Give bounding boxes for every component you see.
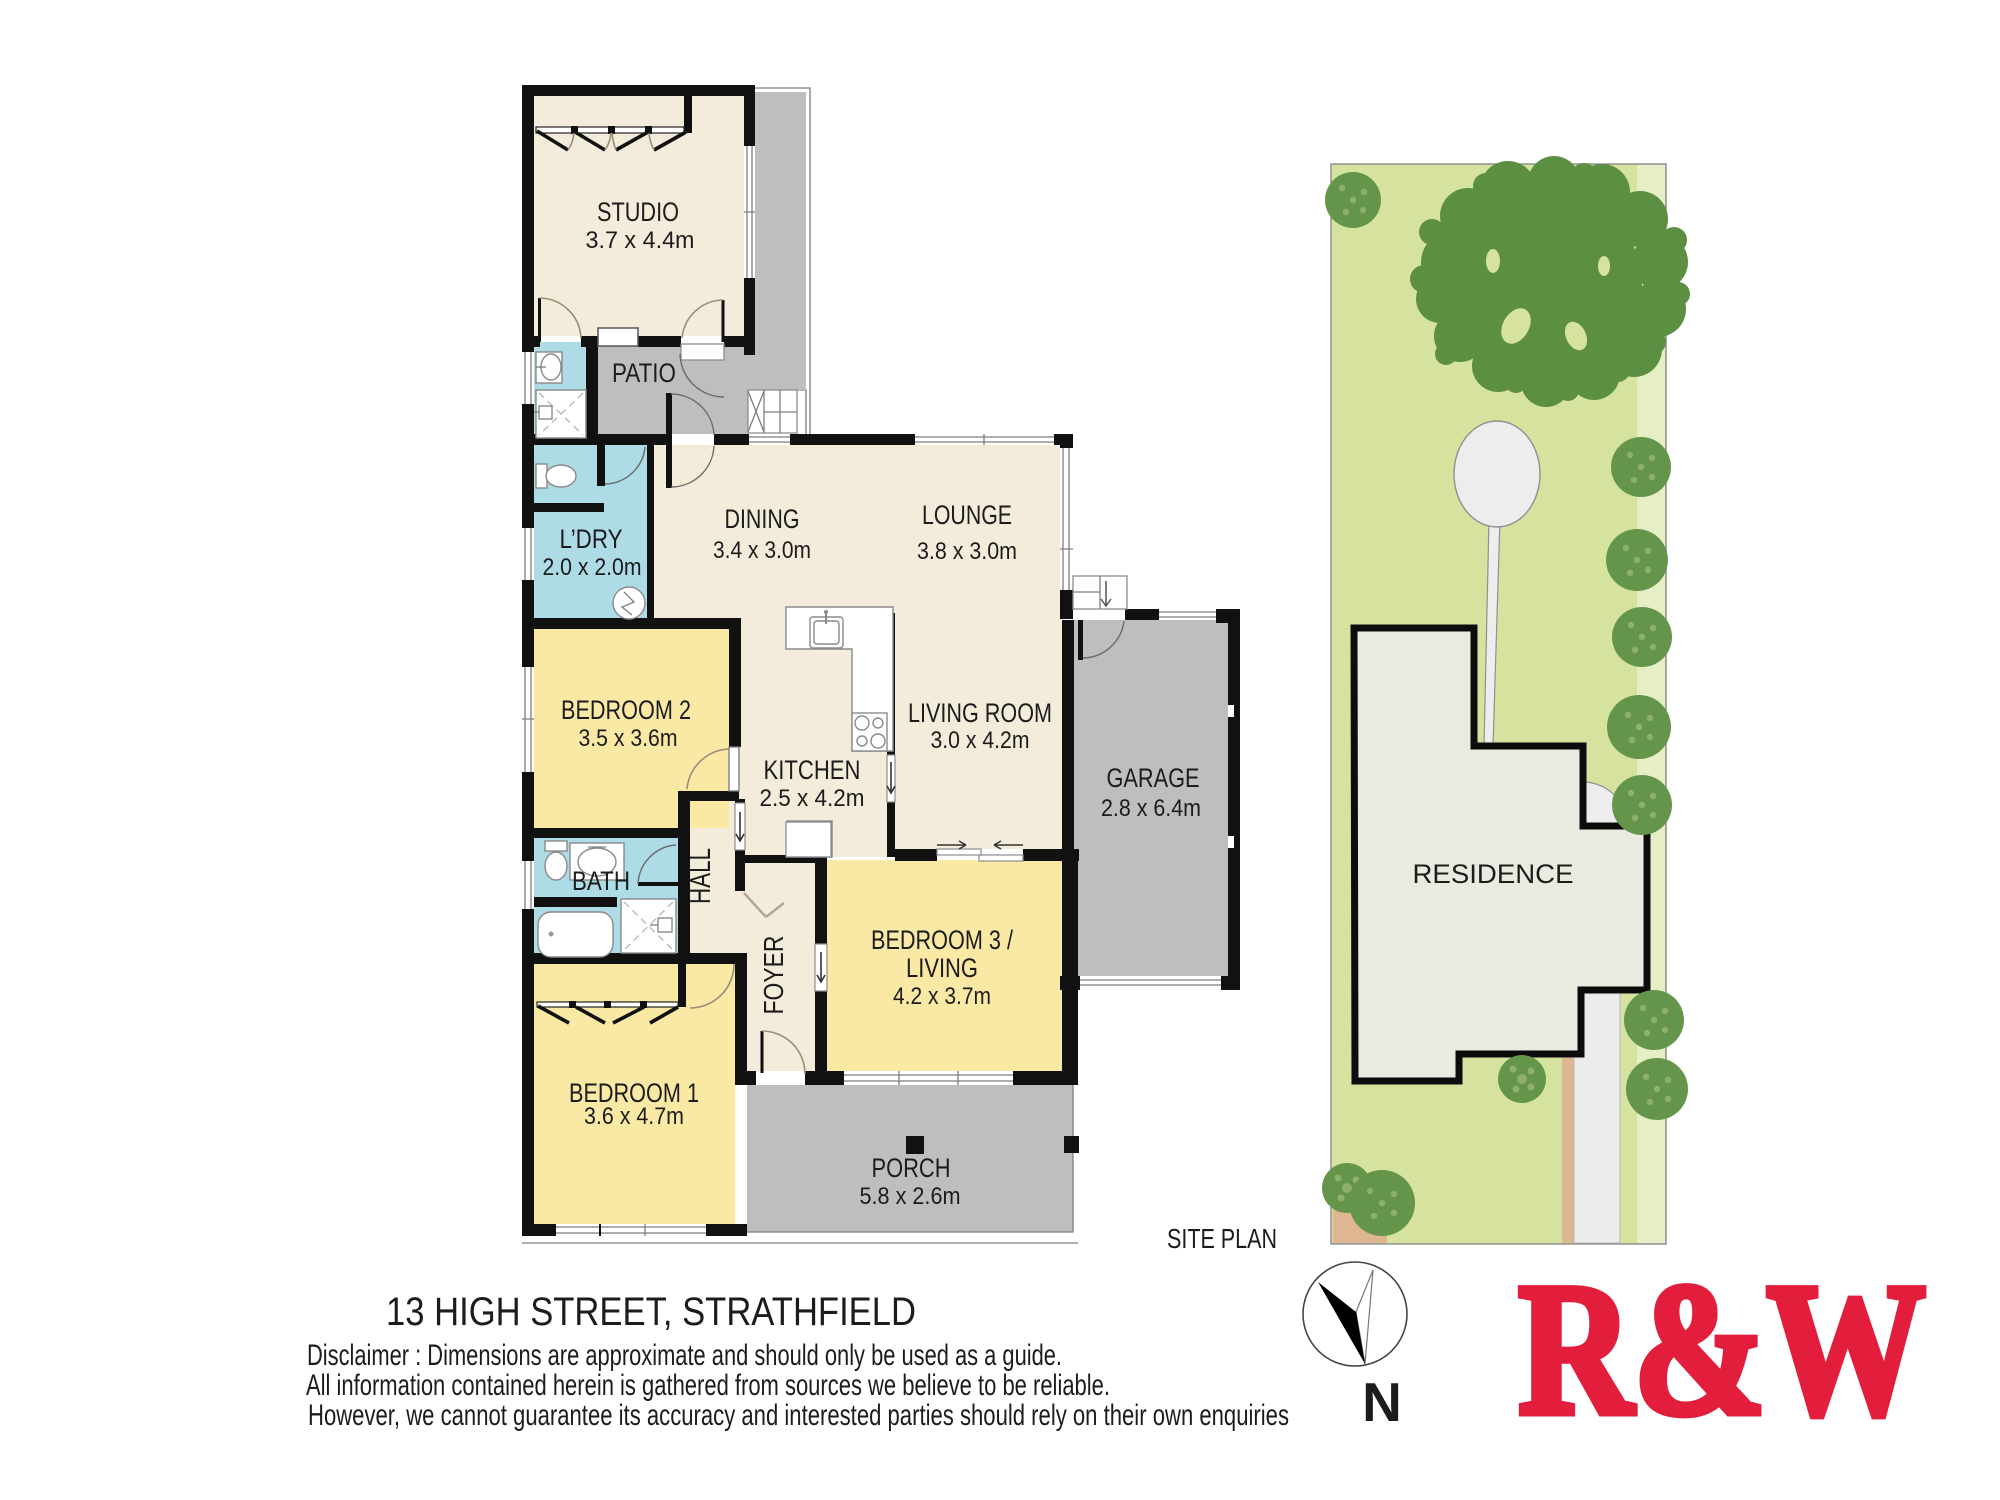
svg-text:2.0 x 2.0m: 2.0 x 2.0m xyxy=(543,554,642,581)
svg-text:STUDIO: STUDIO xyxy=(597,197,679,227)
svg-text:LIVING ROOM: LIVING ROOM xyxy=(908,698,1052,728)
svg-text:LIVING: LIVING xyxy=(906,953,978,983)
svg-text:Disclaimer : Dimensions are ap: Disclaimer : Dimensions are approximate … xyxy=(307,1339,1062,1372)
svg-text:FOYER: FOYER xyxy=(758,936,789,1015)
svg-text:BEDROOM 3 /: BEDROOM 3 / xyxy=(871,925,1013,955)
svg-text:LOUNGE: LOUNGE xyxy=(922,500,1012,530)
svg-text:GARAGE: GARAGE xyxy=(1107,763,1200,793)
svg-text:R&W: R&W xyxy=(1518,1245,1926,1455)
svg-text:All information contained here: All information contained herein is gath… xyxy=(306,1369,1110,1402)
svg-text:3.8 x 3.0m: 3.8 x 3.0m xyxy=(917,538,1017,565)
svg-text:3.7 x 4.4m: 3.7 x 4.4m xyxy=(586,227,695,254)
svg-text:RESIDENCE: RESIDENCE xyxy=(1413,859,1574,889)
svg-text:3.4 x 3.0m: 3.4 x 3.0m xyxy=(713,537,811,564)
svg-text:KITCHEN: KITCHEN xyxy=(764,755,861,785)
svg-text:BATH: BATH xyxy=(572,866,630,896)
svg-text:N: N xyxy=(1362,1371,1402,1433)
svg-text:3.6 x 4.7m: 3.6 x 4.7m xyxy=(584,1103,684,1130)
svg-text:PATIO: PATIO xyxy=(612,358,676,388)
svg-text:L’DRY: L’DRY xyxy=(560,524,623,554)
svg-text:SITE PLAN: SITE PLAN xyxy=(1167,1223,1277,1254)
svg-text:13 HIGH STREET, STRATHFIELD: 13 HIGH STREET, STRATHFIELD xyxy=(386,1290,916,1334)
svg-text:4.2 x 3.7m: 4.2 x 3.7m xyxy=(893,983,991,1010)
svg-text:2.5 x 4.2m: 2.5 x 4.2m xyxy=(760,785,865,812)
svg-text:DINING: DINING xyxy=(725,504,800,534)
svg-text:2.8 x 6.4m: 2.8 x 6.4m xyxy=(1101,795,1201,822)
svg-text:5.8 x 2.6m: 5.8 x 2.6m xyxy=(860,1183,961,1210)
svg-text:3.5 x 3.6m: 3.5 x 3.6m xyxy=(579,725,678,752)
svg-text:3.0 x 4.2m: 3.0 x 4.2m xyxy=(931,727,1030,754)
svg-text:BEDROOM 2: BEDROOM 2 xyxy=(561,695,691,725)
svg-text:HALL: HALL xyxy=(685,848,717,904)
svg-text:However, we cannot guarantee i: However, we cannot guarantee its accurac… xyxy=(308,1399,1289,1432)
svg-text:PORCH: PORCH xyxy=(872,1153,951,1183)
